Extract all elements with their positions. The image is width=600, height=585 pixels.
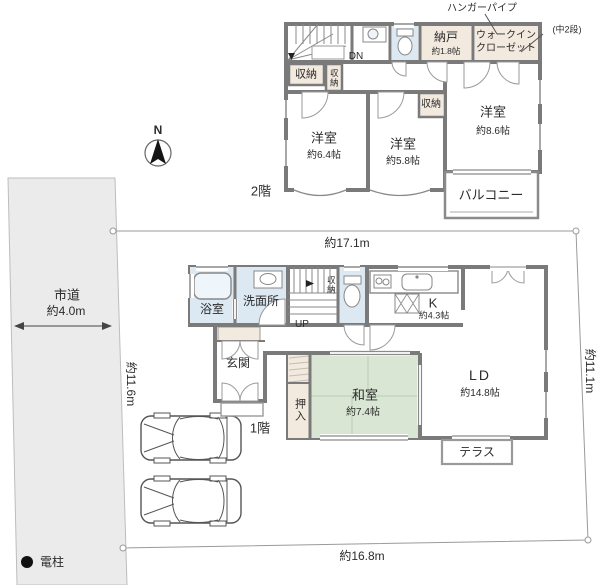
oshiire-label: 押入 bbox=[294, 398, 305, 422]
north-arrow-icon bbox=[145, 139, 171, 166]
bedroom-c-name: 洋室 bbox=[390, 138, 416, 151]
bedroom-e-size: 約8.6帖 bbox=[476, 127, 510, 137]
road-width: 約4.0m bbox=[47, 305, 86, 317]
floorplan-page: 約17.1m 約16.8m 約11.1m 約11.6m 市道 約4.0m N 電… bbox=[0, 0, 600, 585]
closet-c-label: 収納 bbox=[421, 100, 441, 110]
ld-name: LD bbox=[469, 368, 491, 382]
bathtub bbox=[194, 273, 231, 299]
kitchen-counter bbox=[370, 271, 458, 293]
oshiire-room bbox=[288, 353, 310, 438]
washbasin-2f bbox=[363, 27, 386, 42]
floor-plan-canvas bbox=[0, 0, 600, 585]
north-label: N bbox=[154, 124, 163, 136]
bedroom-e-name: 洋室 bbox=[480, 106, 506, 119]
kitchen-size: 約4.3帖 bbox=[419, 312, 450, 321]
washroom-label: 洗面所 bbox=[243, 295, 279, 307]
wic-name-line1: ウォークイン bbox=[476, 31, 536, 41]
washroom-sink bbox=[254, 271, 282, 288]
entrance-label: 玄関 bbox=[226, 357, 250, 369]
dim-bottom: 約16.8m bbox=[339, 550, 384, 562]
stair-up-label: UP bbox=[295, 320, 309, 330]
dim-top: 約17.1m bbox=[324, 237, 369, 249]
toilet-fixture-1f bbox=[344, 276, 361, 307]
car-1 bbox=[141, 413, 241, 463]
toilet-fixture-2f bbox=[397, 29, 413, 55]
refrigerator-space bbox=[395, 294, 419, 313]
road-name: 市道 bbox=[54, 289, 80, 302]
nando-size: 約1.8帖 bbox=[432, 47, 461, 56]
pole-label: 電柱 bbox=[40, 556, 64, 568]
bedroom-w-size: 約6.4帖 bbox=[307, 151, 341, 161]
bath-label: 浴室 bbox=[200, 303, 224, 315]
washitsu-size: 約7.4帖 bbox=[346, 408, 380, 418]
utility-pole-icon bbox=[21, 556, 33, 568]
shoe-cabinet bbox=[218, 327, 260, 341]
balcony-label: バルコニー bbox=[459, 189, 524, 202]
washitsu-name: 和室 bbox=[352, 389, 378, 402]
dim-left: 約11.6m bbox=[125, 362, 137, 406]
ld-size: 約14.8帖 bbox=[460, 389, 499, 399]
bedroom-c-size: 約5.8帖 bbox=[386, 157, 420, 167]
wic-name-line2: クローゼット bbox=[476, 44, 536, 54]
stair-dn-label: DN bbox=[349, 52, 363, 62]
road-area bbox=[8, 178, 127, 585]
dim-right: 約11.1m bbox=[584, 349, 596, 393]
kitchen-name: K bbox=[429, 297, 438, 310]
bedroom-w-name: 洋室 bbox=[311, 132, 337, 145]
terrace-label: テラス bbox=[459, 446, 495, 458]
floor1-label: 1階 bbox=[250, 422, 270, 435]
mid-shelf-note: (中2段) bbox=[553, 26, 582, 35]
floor2-label: 2階 bbox=[251, 185, 271, 198]
hanger-pipe-note: ハンガーパイプ bbox=[447, 4, 517, 14]
closet-b-label: 収納 bbox=[330, 69, 339, 88]
car-2 bbox=[141, 476, 241, 526]
entrance-porch bbox=[221, 403, 263, 416]
closet-a-label: 収納 bbox=[295, 70, 317, 81]
nando-name: 納戸 bbox=[434, 31, 458, 43]
closet-1f-label: 収納 bbox=[327, 276, 336, 295]
